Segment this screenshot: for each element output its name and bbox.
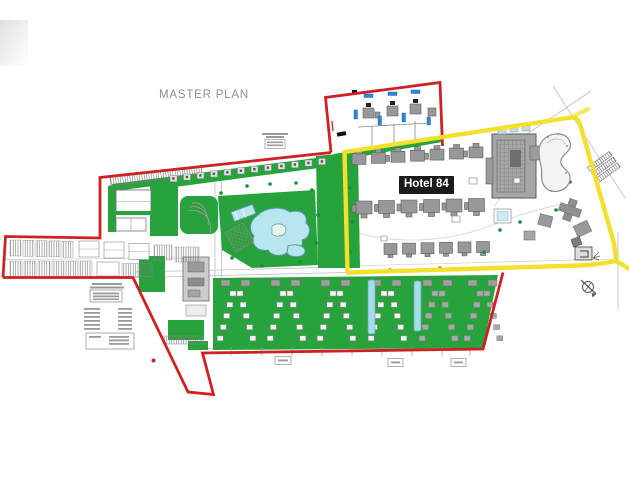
lap-pool-2 bbox=[414, 281, 421, 331]
north-arrow-icon bbox=[581, 280, 596, 298]
villa-2 bbox=[378, 92, 398, 125]
site-plan-drawing bbox=[0, 0, 629, 479]
legend-table bbox=[84, 283, 134, 349]
landscape-green-areas bbox=[108, 136, 517, 350]
plan-title: MASTER PLAN bbox=[159, 89, 249, 101]
hotel-kidney-pool bbox=[539, 133, 571, 192]
villa-3 bbox=[402, 90, 436, 125]
central-pool-complex bbox=[225, 204, 310, 256]
scan-smudge bbox=[0, 20, 28, 66]
gate-structures bbox=[571, 237, 600, 260]
lap-pool-1 bbox=[368, 280, 375, 334]
survey-label bbox=[262, 133, 288, 149]
hotel-room-blocks bbox=[352, 143, 490, 257]
hotel-84-label: Hotel 84 bbox=[399, 176, 454, 194]
master-plan-canvas: MASTER PLAN Hotel 84 bbox=[0, 0, 629, 479]
sports-courts bbox=[116, 190, 151, 231]
red-survey-dot bbox=[152, 359, 156, 363]
villa-1 bbox=[354, 94, 380, 119]
small-pool bbox=[497, 212, 508, 221]
main-hotel-building bbox=[486, 124, 540, 198]
bottom-mini-labels bbox=[275, 357, 466, 367]
